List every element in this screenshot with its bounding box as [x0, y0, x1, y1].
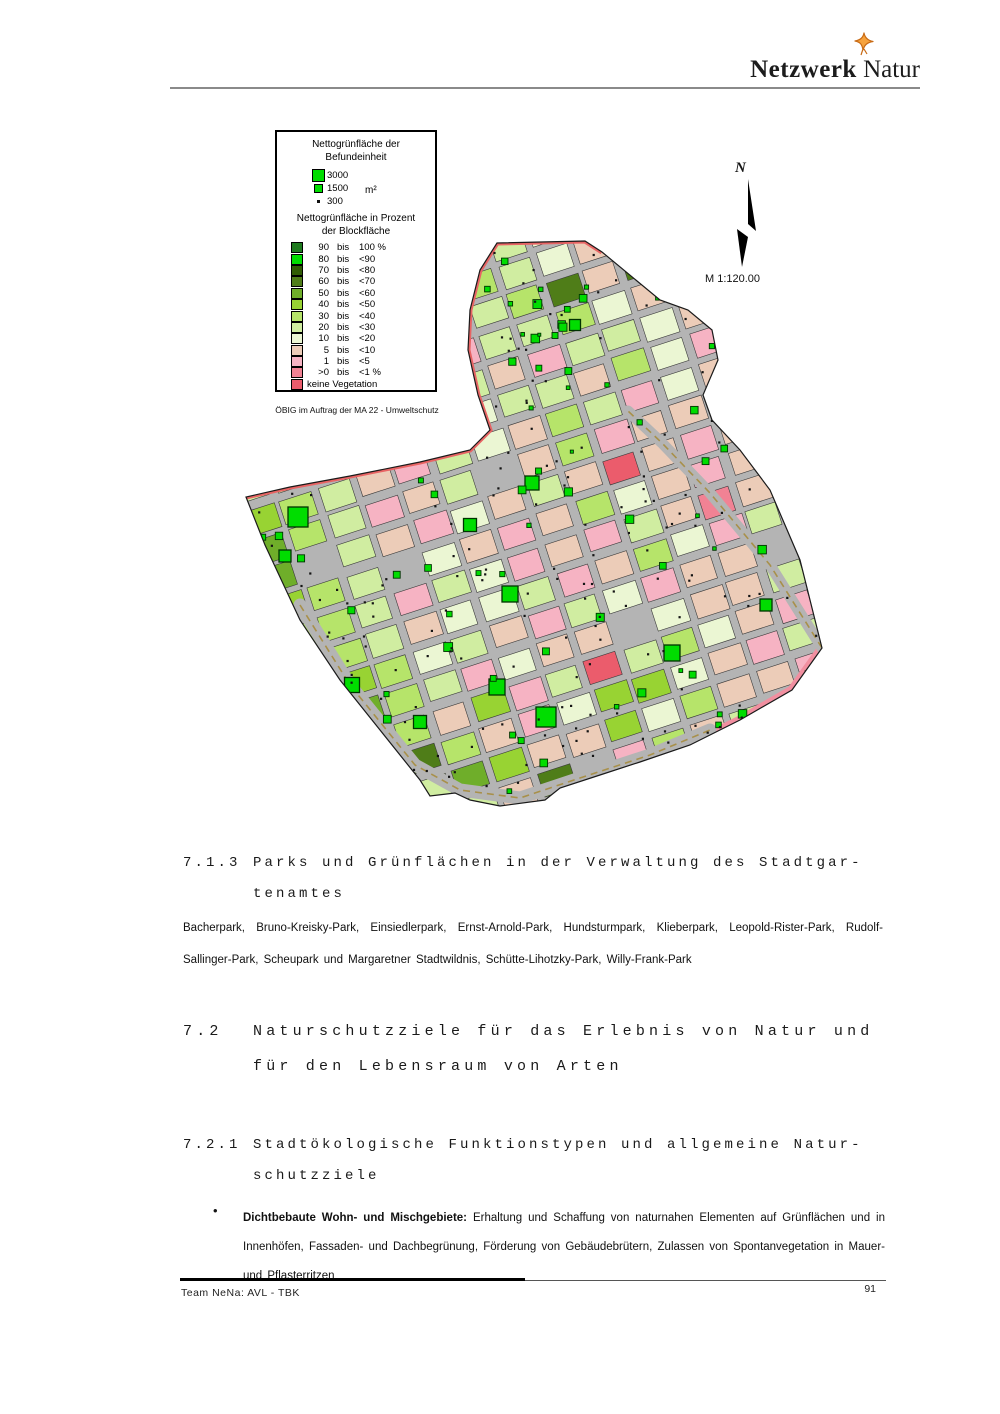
legend-class-row: 60bis<70	[291, 276, 435, 287]
legend-class-label: <70	[359, 276, 375, 287]
legend-class-label: 1	[307, 356, 329, 367]
heading-line2: tenamtes	[253, 886, 345, 902]
legend-class-label: <90	[359, 254, 375, 265]
legend-class-label: <80	[359, 265, 375, 276]
legend-size-label: 3000	[327, 170, 348, 181]
legend-subtitle-line1: Nettogrünfläche in Prozent	[277, 212, 435, 225]
legend-class-row: 50bis<60	[291, 288, 435, 299]
legend-subtitle: Nettogrünfläche in Prozent der Blockfläc…	[277, 212, 435, 238]
footer-team-label: Team NeNa: AVL - TBK	[181, 1287, 300, 1299]
heading-line1: Parks und Grünflächen in der Verwaltung …	[253, 855, 863, 871]
legend-class-label: 10	[307, 333, 329, 344]
legend-color-chip	[291, 288, 303, 299]
heading-number: 7.2	[183, 1014, 253, 1084]
legend-class-label: bis	[337, 254, 359, 265]
legend-class-label: <30	[359, 322, 375, 333]
legend-subtitle-line2: der Blockfläche	[277, 225, 435, 238]
legend-class-label: 50	[307, 288, 329, 299]
legend-class-row: >0bis<1 %	[291, 367, 435, 378]
legend-class-label: <60	[359, 288, 375, 299]
legend-class-label: bis	[337, 242, 359, 253]
legend-class-label: <1 %	[359, 367, 381, 378]
legend-class-label: <40	[359, 311, 375, 322]
legend-class-label: bis	[337, 356, 359, 367]
map-credit: ÖBIG im Auftrag der MA 22 - Umweltschutz	[262, 405, 452, 415]
legend-color-chip	[291, 345, 303, 356]
legend-color-chip	[291, 242, 303, 253]
section-heading-72: 7.2 Naturschutzziele für das Erlebnis vo…	[183, 1014, 897, 1084]
map-figure: Nettogrünfläche der Befundeinheit m² 300…	[0, 0, 1000, 840]
legend-color-chip	[291, 311, 303, 322]
heading-line1: Naturschutzziele für das Erlebnis von Na…	[253, 1023, 873, 1040]
green-square-icon	[311, 200, 325, 203]
legend-class-label: bis	[337, 311, 359, 322]
legend-color-chip	[291, 379, 303, 390]
heading-line2: schutzziele	[253, 1168, 380, 1184]
legend-class-label: bis	[337, 333, 359, 344]
heading-body: Stadtökologische Funktionstypen und allg…	[253, 1130, 863, 1192]
legend-size-symbols: m² 30001500300	[311, 169, 435, 208]
bullet-lead: Dichtbebaute Wohn- und Mischgebiete:	[243, 1212, 467, 1224]
legend-class-row: 10bis<20	[291, 333, 435, 344]
legend-class-row: 40bis<50	[291, 299, 435, 310]
legend-size-row: 300	[311, 195, 435, 208]
legend-class-label: bis	[337, 299, 359, 310]
green-square-icon	[311, 184, 325, 193]
legend-size-label: 1500	[327, 183, 348, 194]
legend-class-label: >0	[307, 367, 329, 378]
heading-body: Naturschutzziele für das Erlebnis von Na…	[253, 1014, 873, 1084]
legend-class-label: bis	[337, 276, 359, 287]
heading-line1: Stadtökologische Funktionstypen und allg…	[253, 1137, 863, 1153]
green-square-icon	[311, 169, 325, 182]
legend-class-list: 90bis100 %80bis<9070bis<8060bis<7050bis<…	[291, 242, 435, 390]
legend-class-label: 90	[307, 242, 329, 253]
legend-color-chip	[291, 265, 303, 276]
legend-size-row: 3000	[311, 169, 435, 182]
legend-class-row: 1bis<5	[291, 356, 435, 367]
heading-line2: für den Lebensraum von Arten	[253, 1058, 623, 1075]
legend-class-row: keine Vegetation	[291, 379, 435, 390]
legend-title: Nettogrünfläche der Befundeinheit	[277, 138, 435, 164]
legend-size-label: 300	[327, 196, 343, 207]
legend-title-line2: Befundeinheit	[277, 151, 435, 164]
page-number: 91	[786, 1283, 876, 1295]
legend-class-label: <50	[359, 299, 375, 310]
legend-class-label: bis	[337, 265, 359, 276]
legend-class-label: 5	[307, 345, 329, 356]
legend-class-label: 40	[307, 299, 329, 310]
legend-class-row: 30bis<40	[291, 310, 435, 321]
legend-class-label: 100 %	[359, 242, 386, 253]
legend-color-chip	[291, 299, 303, 310]
north-label: N	[735, 160, 795, 177]
legend-class-label: bis	[337, 322, 359, 333]
legend-class-row: 70bis<80	[291, 265, 435, 276]
legend-color-chip	[291, 322, 303, 333]
legend-title-line1: Nettogrünfläche der	[277, 138, 435, 151]
legend-color-chip	[291, 356, 303, 367]
legend-class-label: 30	[307, 311, 329, 322]
footer-rule-thick	[180, 1278, 525, 1281]
legend-class-label: keine Vegetation	[307, 379, 377, 390]
legend-class-label: 70	[307, 265, 329, 276]
section-heading-713: 7.1.3 Parks und Grünflächen in der Verwa…	[183, 848, 893, 910]
scale-label: M 1:120.00	[705, 273, 795, 285]
legend-class-label: bis	[337, 345, 359, 356]
heading-number: 7.1.3	[183, 848, 253, 910]
legend-class-label: 20	[307, 322, 329, 333]
north-arrow-icon	[731, 177, 765, 269]
legend-color-chip	[291, 276, 303, 287]
legend-class-label: bis	[337, 288, 359, 299]
legend-color-chip	[291, 367, 303, 378]
report-page: Netzwerk Natur Nettogrünfläche der Befun…	[0, 0, 1000, 1414]
parks-paragraph: Bacherpark, Bruno-Kreisky-Park, Einsiedl…	[183, 912, 883, 976]
legend-class-label: 60	[307, 276, 329, 287]
map-legend: Nettogrünfläche der Befundeinheit m² 300…	[275, 130, 437, 392]
legend-class-row: 5bis<10	[291, 345, 435, 356]
legend-color-chip	[291, 254, 303, 265]
legend-color-chip	[291, 333, 303, 344]
legend-class-label: 80	[307, 254, 329, 265]
north-indicator: N M 1:120.00	[705, 160, 795, 285]
legend-class-row: 20bis<30	[291, 322, 435, 333]
legend-class-label: <20	[359, 333, 375, 344]
section-heading-721: 7.2.1 Stadtökologische Funktionstypen un…	[183, 1130, 893, 1192]
legend-class-label: bis	[337, 367, 359, 378]
heading-number: 7.2.1	[183, 1130, 253, 1192]
legend-unit-label: m²	[365, 185, 377, 196]
bullet-marker: •	[213, 1203, 218, 1218]
legend-class-label: <10	[359, 345, 375, 356]
heading-body: Parks und Grünflächen in der Verwaltung …	[253, 848, 863, 910]
legend-class-row: 80bis<90	[291, 253, 435, 264]
legend-class-label: <5	[359, 356, 370, 367]
legend-class-row: 90bis100 %	[291, 242, 435, 253]
